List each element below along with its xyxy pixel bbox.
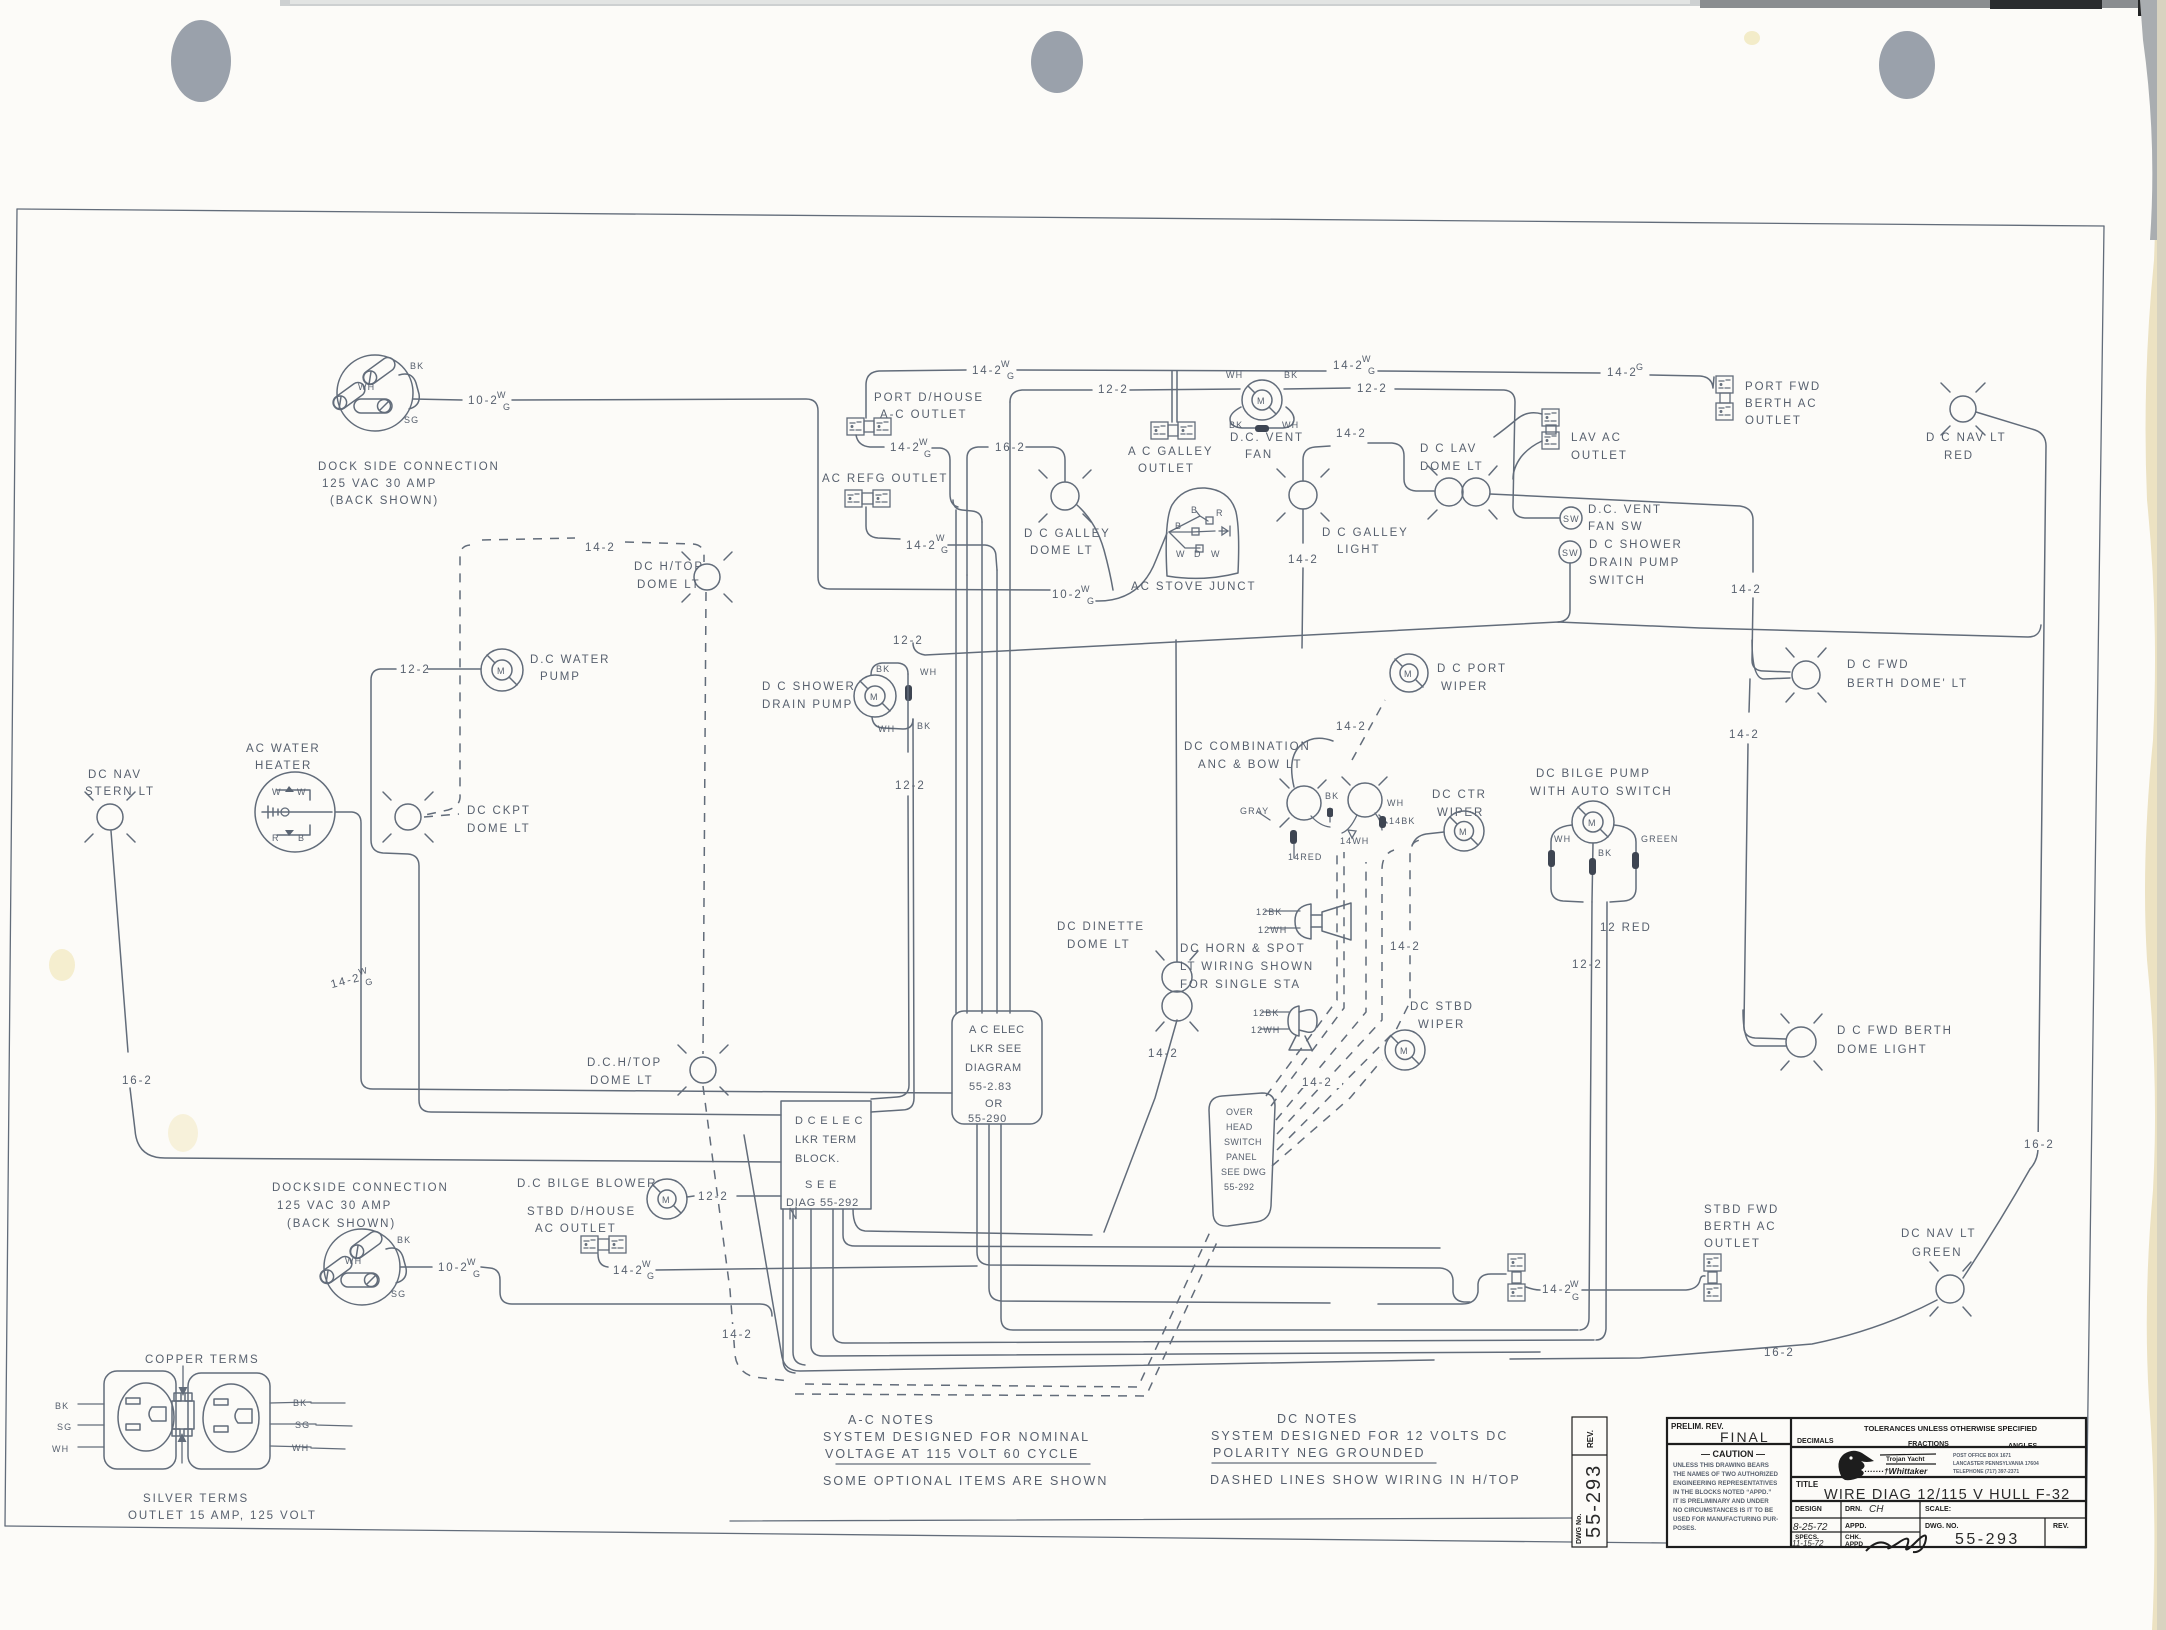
svg-text:RED: RED — [1944, 450, 1974, 462]
svg-text:14-2: 14-2 — [1390, 941, 1421, 953]
svg-text:12-2: 12-2 — [895, 780, 926, 792]
svg-text:DWG No.: DWG No. — [1576, 1514, 1583, 1544]
svg-text:D C SHOWER: D C SHOWER — [762, 681, 856, 693]
svg-text:16-2: 16-2 — [2024, 1139, 2055, 1151]
svg-text:WH: WH — [920, 667, 937, 677]
svg-text:PANEL: PANEL — [1226, 1152, 1257, 1162]
svg-text:W: W — [297, 787, 307, 797]
svg-text:DRAIN PUMP: DRAIN PUMP — [762, 699, 853, 711]
svg-text:14-2: 14-2 — [1288, 554, 1319, 566]
svg-text:G: G — [1087, 596, 1095, 606]
svg-text:THE NAMES OF TWO AUTHORIZED: THE NAMES OF TWO AUTHORIZED — [1673, 1471, 1778, 1478]
svg-text:M: M — [870, 692, 879, 702]
svg-text:14-2: 14-2 — [972, 365, 1003, 377]
svg-text:NO CIRCUMSTANCES IS IT TO BE: NO CIRCUMSTANCES IS IT TO BE — [1673, 1507, 1773, 1514]
svg-text:W: W — [642, 1259, 652, 1269]
svg-text:14-2: 14-2 — [890, 442, 921, 454]
svg-text:SCALE:: SCALE: — [1925, 1506, 1951, 1513]
svg-text:125 VAC 30 AMP: 125 VAC 30 AMP — [277, 1200, 392, 1212]
svg-text:W: W — [1176, 549, 1186, 559]
svg-text:55-292: 55-292 — [1224, 1182, 1254, 1192]
svg-text:LAV AC: LAV AC — [1571, 432, 1622, 444]
svg-text:DOME LT: DOME LT — [467, 823, 531, 835]
svg-text:SWITCH: SWITCH — [1224, 1137, 1262, 1147]
svg-text:LT WIRING SHOWN: LT WIRING SHOWN — [1180, 961, 1314, 973]
svg-text:POST OFFICE BOX 1671: POST OFFICE BOX 1671 — [1953, 1453, 2011, 1459]
svg-text:AC REFG OUTLET: AC REFG OUTLET — [822, 473, 948, 485]
svg-text:DC CTR: DC CTR — [1432, 789, 1487, 801]
svg-text:REV.: REV. — [1586, 1430, 1595, 1448]
svg-text:POSES.: POSES. — [1673, 1525, 1696, 1532]
svg-text:PORT D/HOUSE: PORT D/HOUSE — [874, 392, 984, 404]
svg-text:DOME LT: DOME LT — [1030, 545, 1094, 557]
svg-text:DC NAV LT: DC NAV LT — [1901, 1228, 1976, 1240]
svg-text:DC CKPT: DC CKPT — [467, 805, 531, 817]
svg-text:12 RED: 12 RED — [1600, 922, 1652, 934]
svg-text:FAN SW: FAN SW — [1588, 521, 1644, 533]
svg-text:OVER: OVER — [1226, 1107, 1253, 1117]
svg-text:DRN.: DRN. — [1845, 1506, 1862, 1513]
svg-text:DC NAV: DC NAV — [88, 769, 142, 781]
svg-text:14-2: 14-2 — [722, 1329, 753, 1341]
svg-text:HEAD: HEAD — [1226, 1122, 1253, 1132]
svg-text:12WH: 12WH — [1258, 925, 1287, 935]
svg-text:Trojan Yacht: Trojan Yacht — [1886, 1456, 1925, 1463]
svg-text:CH: CH — [1869, 1504, 1884, 1515]
svg-text:AC STOVE JUNCT: AC STOVE JUNCT — [1131, 581, 1256, 593]
svg-text:D C PORT: D C PORT — [1437, 663, 1507, 675]
svg-text:IT IS PRELIMINARY AND UNDER: IT IS PRELIMINARY AND UNDER — [1673, 1498, 1769, 1505]
svg-text:G: G — [1636, 362, 1644, 372]
svg-text:BK: BK — [55, 1401, 69, 1411]
svg-text:DOME LT: DOME LT — [1420, 461, 1484, 473]
svg-text:R: R — [272, 833, 280, 843]
svg-text:DC COMBINATION: DC COMBINATION — [1184, 741, 1311, 753]
svg-text:WH: WH — [1387, 798, 1404, 808]
svg-text:B: B — [298, 833, 305, 843]
svg-text:16-2: 16-2 — [122, 1075, 153, 1087]
svg-text:DC STBD: DC STBD — [1410, 1001, 1474, 1013]
svg-text:G: G — [941, 545, 949, 555]
svg-text:D.C. VENT: D.C. VENT — [1230, 432, 1304, 444]
svg-text:TOLERANCES UNLESS OTHERWISE SP: TOLERANCES UNLESS OTHERWISE SPECIFIED — [1864, 1424, 2038, 1433]
svg-text:D C LAV: D C LAV — [1420, 443, 1477, 455]
svg-text:D C FWD: D C FWD — [1847, 659, 1909, 671]
svg-text:FOR SINGLE STA: FOR SINGLE STA — [1180, 979, 1301, 991]
svg-text:DC BILGE PUMP: DC BILGE PUMP — [1536, 768, 1651, 780]
svg-text:BK: BK — [1598, 848, 1612, 858]
svg-text:A C GALLEY: A C GALLEY — [1128, 446, 1213, 458]
svg-text:12-2: 12-2 — [1357, 383, 1388, 395]
svg-text:G: G — [503, 402, 511, 412]
svg-text:W: W — [497, 390, 507, 400]
svg-text:M: M — [1257, 396, 1266, 406]
svg-text:DRAIN PUMP: DRAIN PUMP — [1589, 557, 1680, 569]
svg-text:STERN LT: STERN LT — [85, 786, 155, 798]
svg-text:DC NOTES: DC NOTES — [1277, 1412, 1358, 1426]
svg-text:14-2: 14-2 — [1336, 428, 1367, 440]
svg-text:D C SHOWER: D C SHOWER — [1589, 539, 1683, 551]
svg-text:D.C WATER: D.C WATER — [530, 654, 610, 666]
svg-text:HEATER: HEATER — [255, 760, 312, 772]
svg-text:WH: WH — [52, 1444, 69, 1454]
svg-text:12-2: 12-2 — [400, 664, 431, 676]
svg-text:DIAGRAM: DIAGRAM — [965, 1062, 1022, 1074]
svg-text:OUTLET: OUTLET — [1704, 1238, 1761, 1250]
svg-text:14-2: 14-2 — [1607, 367, 1638, 379]
svg-text:SOME OPTIONAL ITEMS ARE SHOWN: SOME OPTIONAL ITEMS ARE SHOWN — [823, 1474, 1108, 1488]
svg-text:UNLESS THIS DRAWING BEARS: UNLESS THIS DRAWING BEARS — [1673, 1462, 1769, 1469]
svg-text:ENGINEERING REPRESENTATIVES: ENGINEERING REPRESENTATIVES — [1673, 1480, 1777, 1487]
svg-text:W: W — [1211, 549, 1221, 559]
svg-text:BK: BK — [1229, 420, 1243, 430]
svg-text:M: M — [1400, 1046, 1409, 1056]
svg-text:STBD FWD: STBD FWD — [1704, 1204, 1779, 1216]
svg-text:APPD: APPD — [1845, 1541, 1863, 1548]
svg-text:WH: WH — [358, 382, 375, 392]
svg-text:AC OUTLET: AC OUTLET — [535, 1223, 617, 1235]
svg-text:DECIMALS: DECIMALS — [1797, 1438, 1834, 1445]
svg-text:14-2: 14-2 — [585, 542, 616, 554]
svg-text:BK: BK — [1325, 791, 1339, 801]
svg-text:M: M — [1459, 827, 1468, 837]
svg-text:10-2: 10-2 — [438, 1262, 469, 1274]
svg-text:TITLE: TITLE — [1796, 1480, 1819, 1489]
svg-text:14-2: 14-2 — [1302, 1077, 1333, 1089]
svg-text:DOCKSIDE CONNECTION: DOCKSIDE CONNECTION — [272, 1182, 449, 1194]
svg-text:DOME LT: DOME LT — [590, 1075, 654, 1087]
svg-text:LANCASTER PENNSYLVANIA 17604: LANCASTER PENNSYLVANIA 17604 — [1953, 1461, 2039, 1467]
svg-text:12BK: 12BK — [1256, 907, 1282, 917]
svg-text:REV.: REV. — [2053, 1523, 2069, 1530]
svg-text:WIRE DIAG 12/115 V HULL F-32: WIRE DIAG 12/115 V HULL F-32 — [1824, 1487, 2070, 1503]
svg-text:WIPER: WIPER — [1437, 807, 1484, 819]
svg-text:DOME LT: DOME LT — [1067, 939, 1131, 951]
svg-text:BK: BK — [397, 1235, 411, 1245]
svg-text:G: G — [1368, 366, 1376, 376]
svg-text:14-2: 14-2 — [1729, 729, 1760, 741]
svg-text:D.C BILGE BLOWER: D.C BILGE BLOWER — [517, 1178, 657, 1190]
svg-text:G: G — [1572, 1292, 1580, 1302]
svg-text:SEE DWG: SEE DWG — [1221, 1167, 1266, 1177]
svg-text:14-2: 14-2 — [1336, 721, 1367, 733]
svg-text:DWG. NO.: DWG. NO. — [1925, 1523, 1958, 1530]
svg-text:SG: SG — [57, 1422, 72, 1432]
svg-text:BERTH AC: BERTH AC — [1704, 1221, 1777, 1233]
svg-text:12-2: 12-2 — [698, 1191, 729, 1203]
svg-text:8-25-72: 8-25-72 — [1793, 1522, 1828, 1533]
svg-text:SILVER TERMS: SILVER TERMS — [143, 1493, 249, 1505]
svg-text:LKR TERM: LKR TERM — [795, 1134, 857, 1146]
svg-text:DOCK SIDE CONNECTION: DOCK SIDE CONNECTION — [318, 461, 500, 473]
svg-text:WH: WH — [878, 724, 895, 734]
svg-text:M: M — [1588, 818, 1597, 828]
svg-text:WH: WH — [1282, 420, 1299, 430]
svg-text:D C NAV LT: D C NAV LT — [1926, 432, 2007, 444]
svg-text:BK: BK — [293, 1398, 307, 1408]
svg-text:A-C NOTES: A-C NOTES — [848, 1413, 935, 1427]
svg-text:OUTLET: OUTLET — [1745, 415, 1802, 427]
svg-text:M: M — [497, 666, 506, 676]
svg-text:APPD.: APPD. — [1845, 1523, 1866, 1530]
svg-text:DESIGN: DESIGN — [1795, 1506, 1822, 1513]
svg-text:FAN: FAN — [1245, 449, 1273, 461]
svg-text:D C E L E C: D C E L E C — [795, 1115, 863, 1127]
svg-text:USED FOR MANUFACTURING PUR-: USED FOR MANUFACTURING PUR- — [1673, 1516, 1778, 1523]
svg-text:PUMP: PUMP — [540, 671, 581, 683]
svg-text:W: W — [919, 437, 929, 447]
svg-text:WIPER: WIPER — [1418, 1019, 1465, 1031]
svg-text:WH: WH — [1226, 370, 1243, 380]
svg-text:WH: WH — [292, 1443, 309, 1453]
svg-text:WH: WH — [1554, 834, 1571, 844]
svg-text:G: G — [473, 1269, 481, 1279]
svg-text:12-2: 12-2 — [1572, 959, 1603, 971]
svg-text:12-2: 12-2 — [1098, 384, 1129, 396]
svg-text:W: W — [272, 787, 282, 797]
svg-text:·······†Whittaker: ·······†Whittaker — [1864, 1466, 1928, 1476]
svg-text:G: G — [1007, 371, 1015, 381]
svg-text:14-2: 14-2 — [906, 540, 937, 552]
svg-text:LKR SEE: LKR SEE — [970, 1043, 1022, 1055]
svg-text:12BK: 12BK — [1253, 1008, 1279, 1018]
svg-text:TELEPHONE (717) 397-2371: TELEPHONE (717) 397-2371 — [1953, 1469, 2019, 1475]
svg-text:D C GALLEY: D C GALLEY — [1322, 527, 1409, 539]
svg-text:125 VAC 30 AMP: 125 VAC 30 AMP — [322, 478, 437, 490]
svg-text:BERTH DOME' LT: BERTH DOME' LT — [1847, 678, 1968, 690]
svg-text:FINAL: FINAL — [1720, 1429, 1770, 1445]
svg-text:B: B — [1191, 505, 1198, 515]
svg-text:14BK: 14BK — [1389, 816, 1415, 826]
svg-text:DOME LT: DOME LT — [637, 579, 701, 591]
svg-text:SYSTEM DESIGNED FOR NOMINAL: SYSTEM DESIGNED FOR NOMINAL — [823, 1430, 1090, 1444]
svg-text:D: D — [1194, 549, 1202, 559]
svg-text:OUTLET: OUTLET — [1138, 463, 1195, 475]
svg-text:OUTLET 15 AMP, 125 VOLT: OUTLET 15 AMP, 125 VOLT — [128, 1510, 317, 1522]
svg-text:11-15-72: 11-15-72 — [1792, 1539, 1824, 1548]
svg-text:14-2: 14-2 — [1542, 1284, 1573, 1296]
svg-text:B: B — [1175, 521, 1182, 531]
svg-text:DC H/TOP: DC H/TOP — [634, 561, 704, 573]
svg-text:BERTH AC: BERTH AC — [1745, 398, 1818, 410]
svg-text:BK: BK — [917, 721, 931, 731]
svg-text:14-2: 14-2 — [1731, 584, 1762, 596]
svg-text:DIAG 55-292: DIAG 55-292 — [786, 1197, 859, 1209]
svg-text:BLOCK.: BLOCK. — [795, 1153, 840, 1165]
svg-text:DC HORN & SPOT: DC HORN & SPOT — [1180, 943, 1306, 955]
svg-text:14-2: 14-2 — [1148, 1048, 1179, 1060]
svg-text:55-293: 55-293 — [1583, 1464, 1605, 1538]
svg-text:SG: SG — [404, 415, 419, 425]
svg-text:DOME LIGHT: DOME LIGHT — [1837, 1044, 1928, 1056]
svg-text:OUTLET: OUTLET — [1571, 450, 1628, 462]
svg-text:G: G — [924, 449, 932, 459]
svg-text:GREEN: GREEN — [1641, 834, 1679, 844]
svg-text:D.C.H/TOP: D.C.H/TOP — [587, 1057, 662, 1069]
svg-text:W: W — [936, 533, 946, 543]
svg-text:W: W — [467, 1257, 477, 1267]
svg-text:IN THE BLOCKS NOTED “APPD.”: IN THE BLOCKS NOTED “APPD.” — [1673, 1489, 1771, 1496]
svg-text:SYSTEM DESIGNED FOR 12 VOLTS D: SYSTEM DESIGNED FOR 12 VOLTS DC — [1211, 1429, 1509, 1443]
svg-text:M: M — [662, 1195, 671, 1205]
svg-text:SG: SG — [295, 1420, 310, 1430]
svg-text:GREEN: GREEN — [1912, 1247, 1962, 1259]
svg-text:ANGLES: ANGLES — [2008, 1443, 2038, 1450]
svg-text:WITH AUTO SWITCH: WITH AUTO SWITCH — [1530, 786, 1673, 798]
svg-text:G: G — [647, 1271, 655, 1281]
svg-text:FRACTIONS: FRACTIONS — [1908, 1441, 1949, 1448]
svg-text:SW: SW — [1562, 548, 1579, 558]
svg-text:ANC & BOW LT: ANC & BOW LT — [1198, 759, 1302, 771]
svg-text:COPPER TERMS: COPPER TERMS — [145, 1354, 260, 1366]
svg-text:14-2: 14-2 — [1333, 360, 1364, 372]
svg-text:OR: OR — [985, 1098, 1003, 1110]
svg-text:14WH: 14WH — [1340, 836, 1369, 846]
svg-text:W: W — [1570, 1279, 1580, 1289]
svg-text:10-2: 10-2 — [468, 395, 499, 407]
svg-text:DASHED LINES SHOW WIRING IN H/: DASHED LINES SHOW WIRING IN H/TOP — [1210, 1473, 1521, 1487]
svg-text:— CAUTION —: — CAUTION — — [1701, 1449, 1765, 1459]
svg-text:GRAY: GRAY — [1240, 806, 1269, 816]
svg-text:D.C. VENT: D.C. VENT — [1588, 504, 1662, 516]
svg-text:(BACK SHOWN): (BACK SHOWN) — [330, 495, 439, 507]
svg-text:S E E: S E E — [805, 1179, 837, 1191]
svg-text:12WH: 12WH — [1251, 1025, 1280, 1035]
svg-text:10-2: 10-2 — [1052, 589, 1083, 601]
svg-text:VOLTAGE AT 115 VOLT 60 CYCLE: VOLTAGE AT 115 VOLT 60 CYCLE — [825, 1447, 1080, 1461]
svg-text:W: W — [1001, 359, 1011, 369]
svg-text:SW: SW — [1563, 514, 1580, 524]
svg-text:SWITCH: SWITCH — [1589, 575, 1646, 587]
svg-text:12-2: 12-2 — [893, 635, 924, 647]
svg-text:AC WATER: AC WATER — [246, 743, 321, 755]
svg-text:STBD D/HOUSE: STBD D/HOUSE — [527, 1206, 636, 1218]
svg-text:(BACK SHOWN): (BACK SHOWN) — [287, 1218, 396, 1230]
svg-text:BK: BK — [876, 664, 890, 674]
svg-text:LIGHT: LIGHT — [1337, 544, 1380, 556]
svg-text:W: W — [1081, 584, 1091, 594]
svg-text:55-2.83: 55-2.83 — [969, 1081, 1012, 1093]
svg-text:55-290: 55-290 — [968, 1113, 1007, 1125]
svg-text:W: W — [1362, 354, 1372, 364]
svg-text:D C FWD BERTH: D C FWD BERTH — [1837, 1025, 1953, 1037]
svg-text:WIPER: WIPER — [1441, 681, 1488, 693]
svg-text:WH: WH — [345, 1256, 362, 1266]
svg-text:A C ELEC: A C ELEC — [969, 1024, 1025, 1036]
svg-text:DC DINETTE: DC DINETTE — [1057, 921, 1145, 933]
svg-text:14RED: 14RED — [1288, 852, 1323, 862]
svg-text:SG: SG — [391, 1289, 406, 1299]
svg-text:POLARITY NEG GROUNDED: POLARITY NEG GROUNDED — [1213, 1446, 1426, 1460]
svg-text:BK: BK — [1284, 370, 1298, 380]
svg-text:55-293: 55-293 — [1955, 1531, 2020, 1548]
svg-text:14-2: 14-2 — [613, 1265, 644, 1277]
svg-text:A-C OUTLET: A-C OUTLET — [880, 409, 967, 421]
svg-text:CHK.: CHK. — [1845, 1534, 1861, 1541]
svg-text:M: M — [1404, 669, 1413, 679]
svg-text:BK: BK — [410, 361, 424, 371]
svg-text:PRELIM. REV.: PRELIM. REV. — [1671, 1422, 1724, 1431]
svg-text:R: R — [1216, 508, 1224, 518]
svg-text:16-2: 16-2 — [1764, 1347, 1795, 1359]
svg-text:PORT FWD: PORT FWD — [1745, 381, 1821, 393]
